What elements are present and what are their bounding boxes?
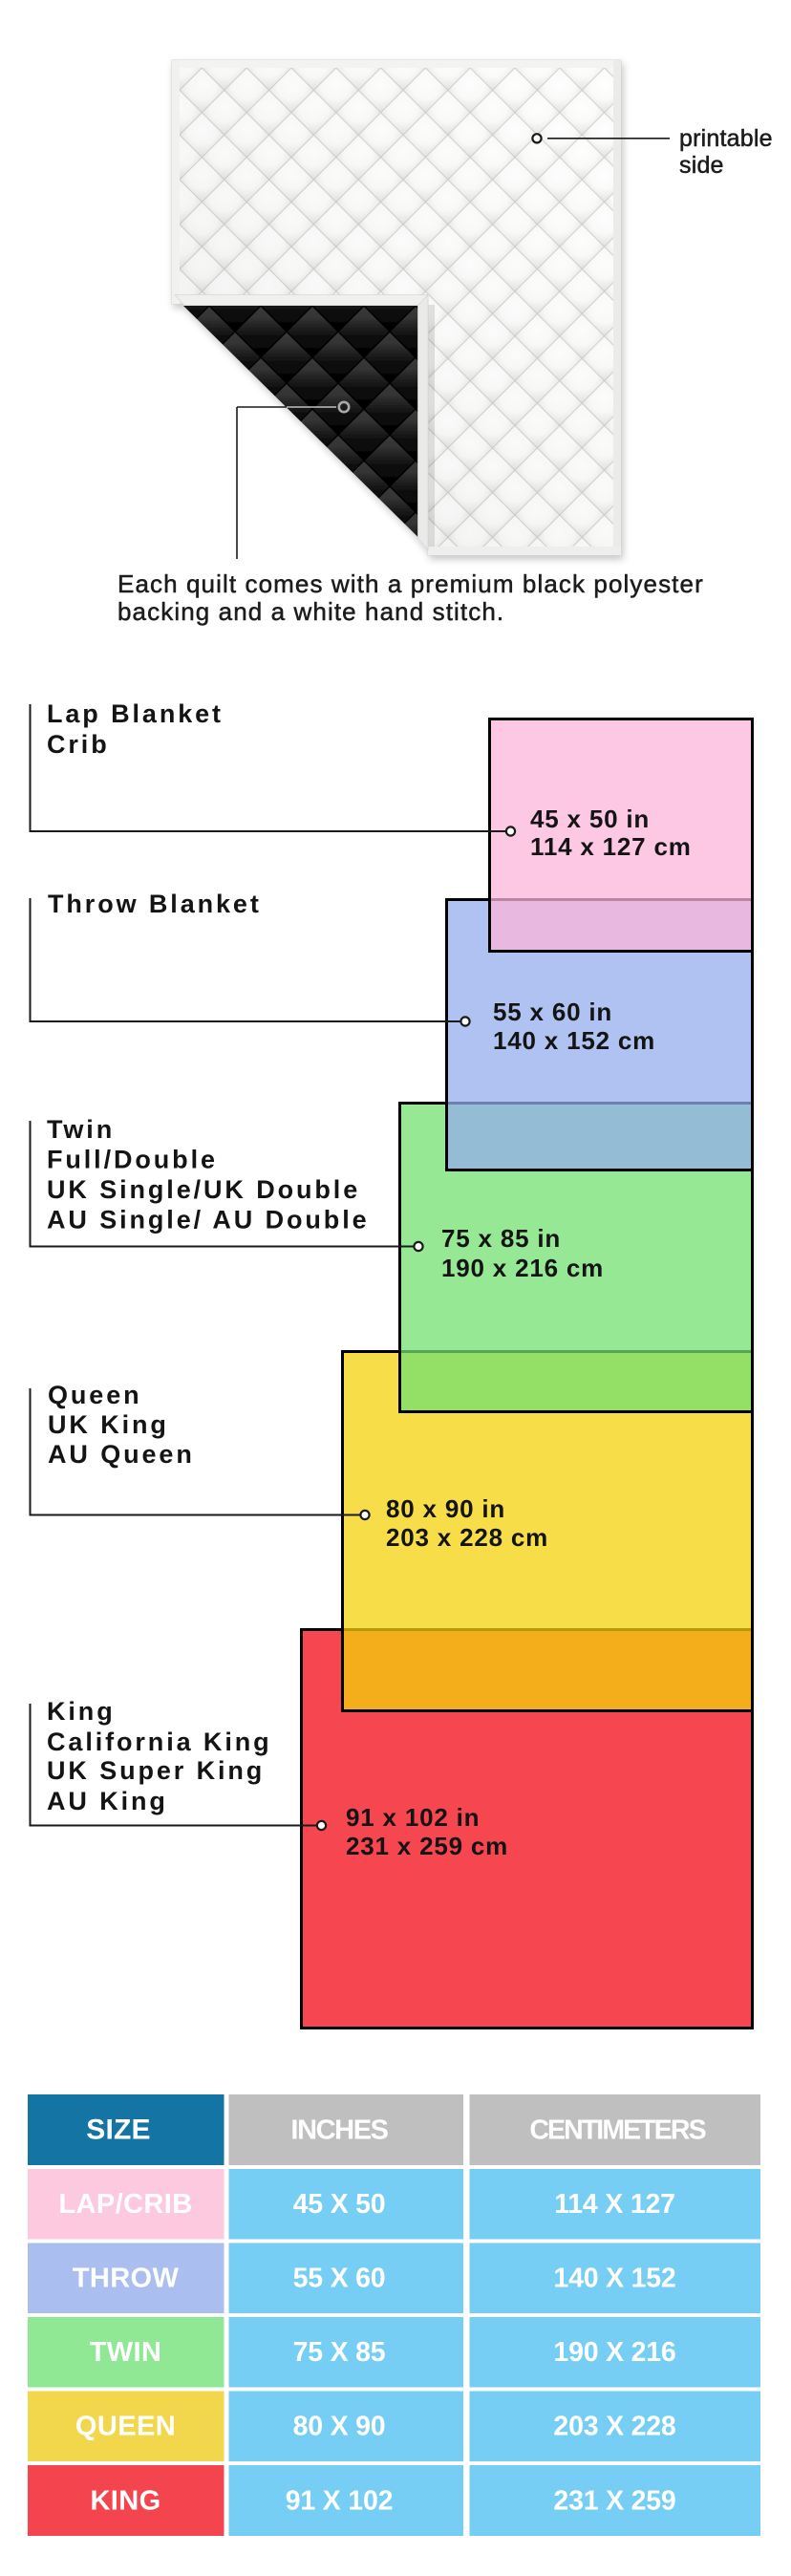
svg-text:140 x 152 cm: 140 x 152 cm: [493, 1026, 655, 1055]
svg-text:114 x 127 cm: 114 x 127 cm: [530, 832, 692, 861]
svg-text:AU King: AU King: [47, 1787, 168, 1815]
svg-text:231 x 259 cm: 231 x 259 cm: [346, 1832, 508, 1860]
svg-text:THROW: THROW: [73, 2264, 180, 2294]
svg-text:91 x 102 in: 91 x 102 in: [346, 1803, 480, 1832]
svg-text:80 x 90 in: 80 x 90 in: [386, 1494, 505, 1523]
svg-text:45 X 50: 45 X 50: [293, 2189, 386, 2220]
svg-text:California King: California King: [47, 1728, 272, 1756]
svg-text:140 X 152: 140 X 152: [553, 2264, 675, 2294]
svg-text:UK King: UK King: [48, 1410, 169, 1439]
svg-text:Twin: Twin: [47, 1115, 115, 1144]
svg-text:55 X 60: 55 X 60: [293, 2264, 386, 2294]
svg-text:Lap Blanket: Lap Blanket: [47, 699, 224, 728]
svg-text:AU Single/ AU Double: AU Single/ AU Double: [47, 1206, 370, 1234]
svg-text:INCHES: INCHES: [290, 2115, 388, 2146]
svg-text:UK Super King: UK Super King: [47, 1756, 265, 1785]
svg-text:UK Single/UK Double: UK Single/UK Double: [47, 1175, 360, 1204]
svg-text:Each quilt comes with a premiu: Each quilt comes with a premium black po…: [118, 569, 704, 598]
svg-text:SIZE: SIZE: [86, 2114, 150, 2146]
svg-text:203 X 228: 203 X 228: [553, 2412, 675, 2442]
svg-text:190 X 216: 190 X 216: [553, 2337, 675, 2368]
svg-text:80 X 90: 80 X 90: [293, 2412, 386, 2442]
svg-text:Full/Double: Full/Double: [47, 1146, 218, 1174]
svg-text:AU Queen: AU Queen: [48, 1440, 195, 1469]
svg-text:King: King: [47, 1697, 116, 1726]
svg-text:Throw Blanket: Throw Blanket: [48, 890, 262, 918]
svg-text:TWIN: TWIN: [90, 2337, 162, 2368]
svg-text:231 X 259: 231 X 259: [553, 2486, 675, 2517]
svg-text:114 X 127: 114 X 127: [554, 2189, 675, 2220]
svg-text:Crib: Crib: [47, 730, 110, 759]
svg-text:KING: KING: [90, 2486, 160, 2517]
svg-text:75 X 85: 75 X 85: [293, 2337, 386, 2368]
svg-text:75 x 85 in: 75 x 85 in: [441, 1224, 561, 1253]
svg-text:LAP/CRIB: LAP/CRIB: [58, 2189, 192, 2220]
svg-text:Queen: Queen: [48, 1381, 142, 1409]
svg-text:55 x 60 in: 55 x 60 in: [493, 998, 612, 1026]
svg-text:203 x 228 cm: 203 x 228 cm: [386, 1523, 548, 1552]
svg-text:printable: printable: [679, 125, 773, 152]
svg-text:91 X 102: 91 X 102: [286, 2486, 394, 2517]
svg-text:190 x 216 cm: 190 x 216 cm: [441, 1254, 604, 1282]
svg-text:CENTIMETERS: CENTIMETERS: [529, 2115, 705, 2146]
svg-text:QUEEN: QUEEN: [75, 2412, 176, 2442]
svg-text:side: side: [679, 152, 724, 179]
svg-text:backing and a white hand stitc: backing and a white hand stitch.: [118, 597, 504, 626]
svg-text:45 x 50 in: 45 x 50 in: [530, 805, 650, 833]
